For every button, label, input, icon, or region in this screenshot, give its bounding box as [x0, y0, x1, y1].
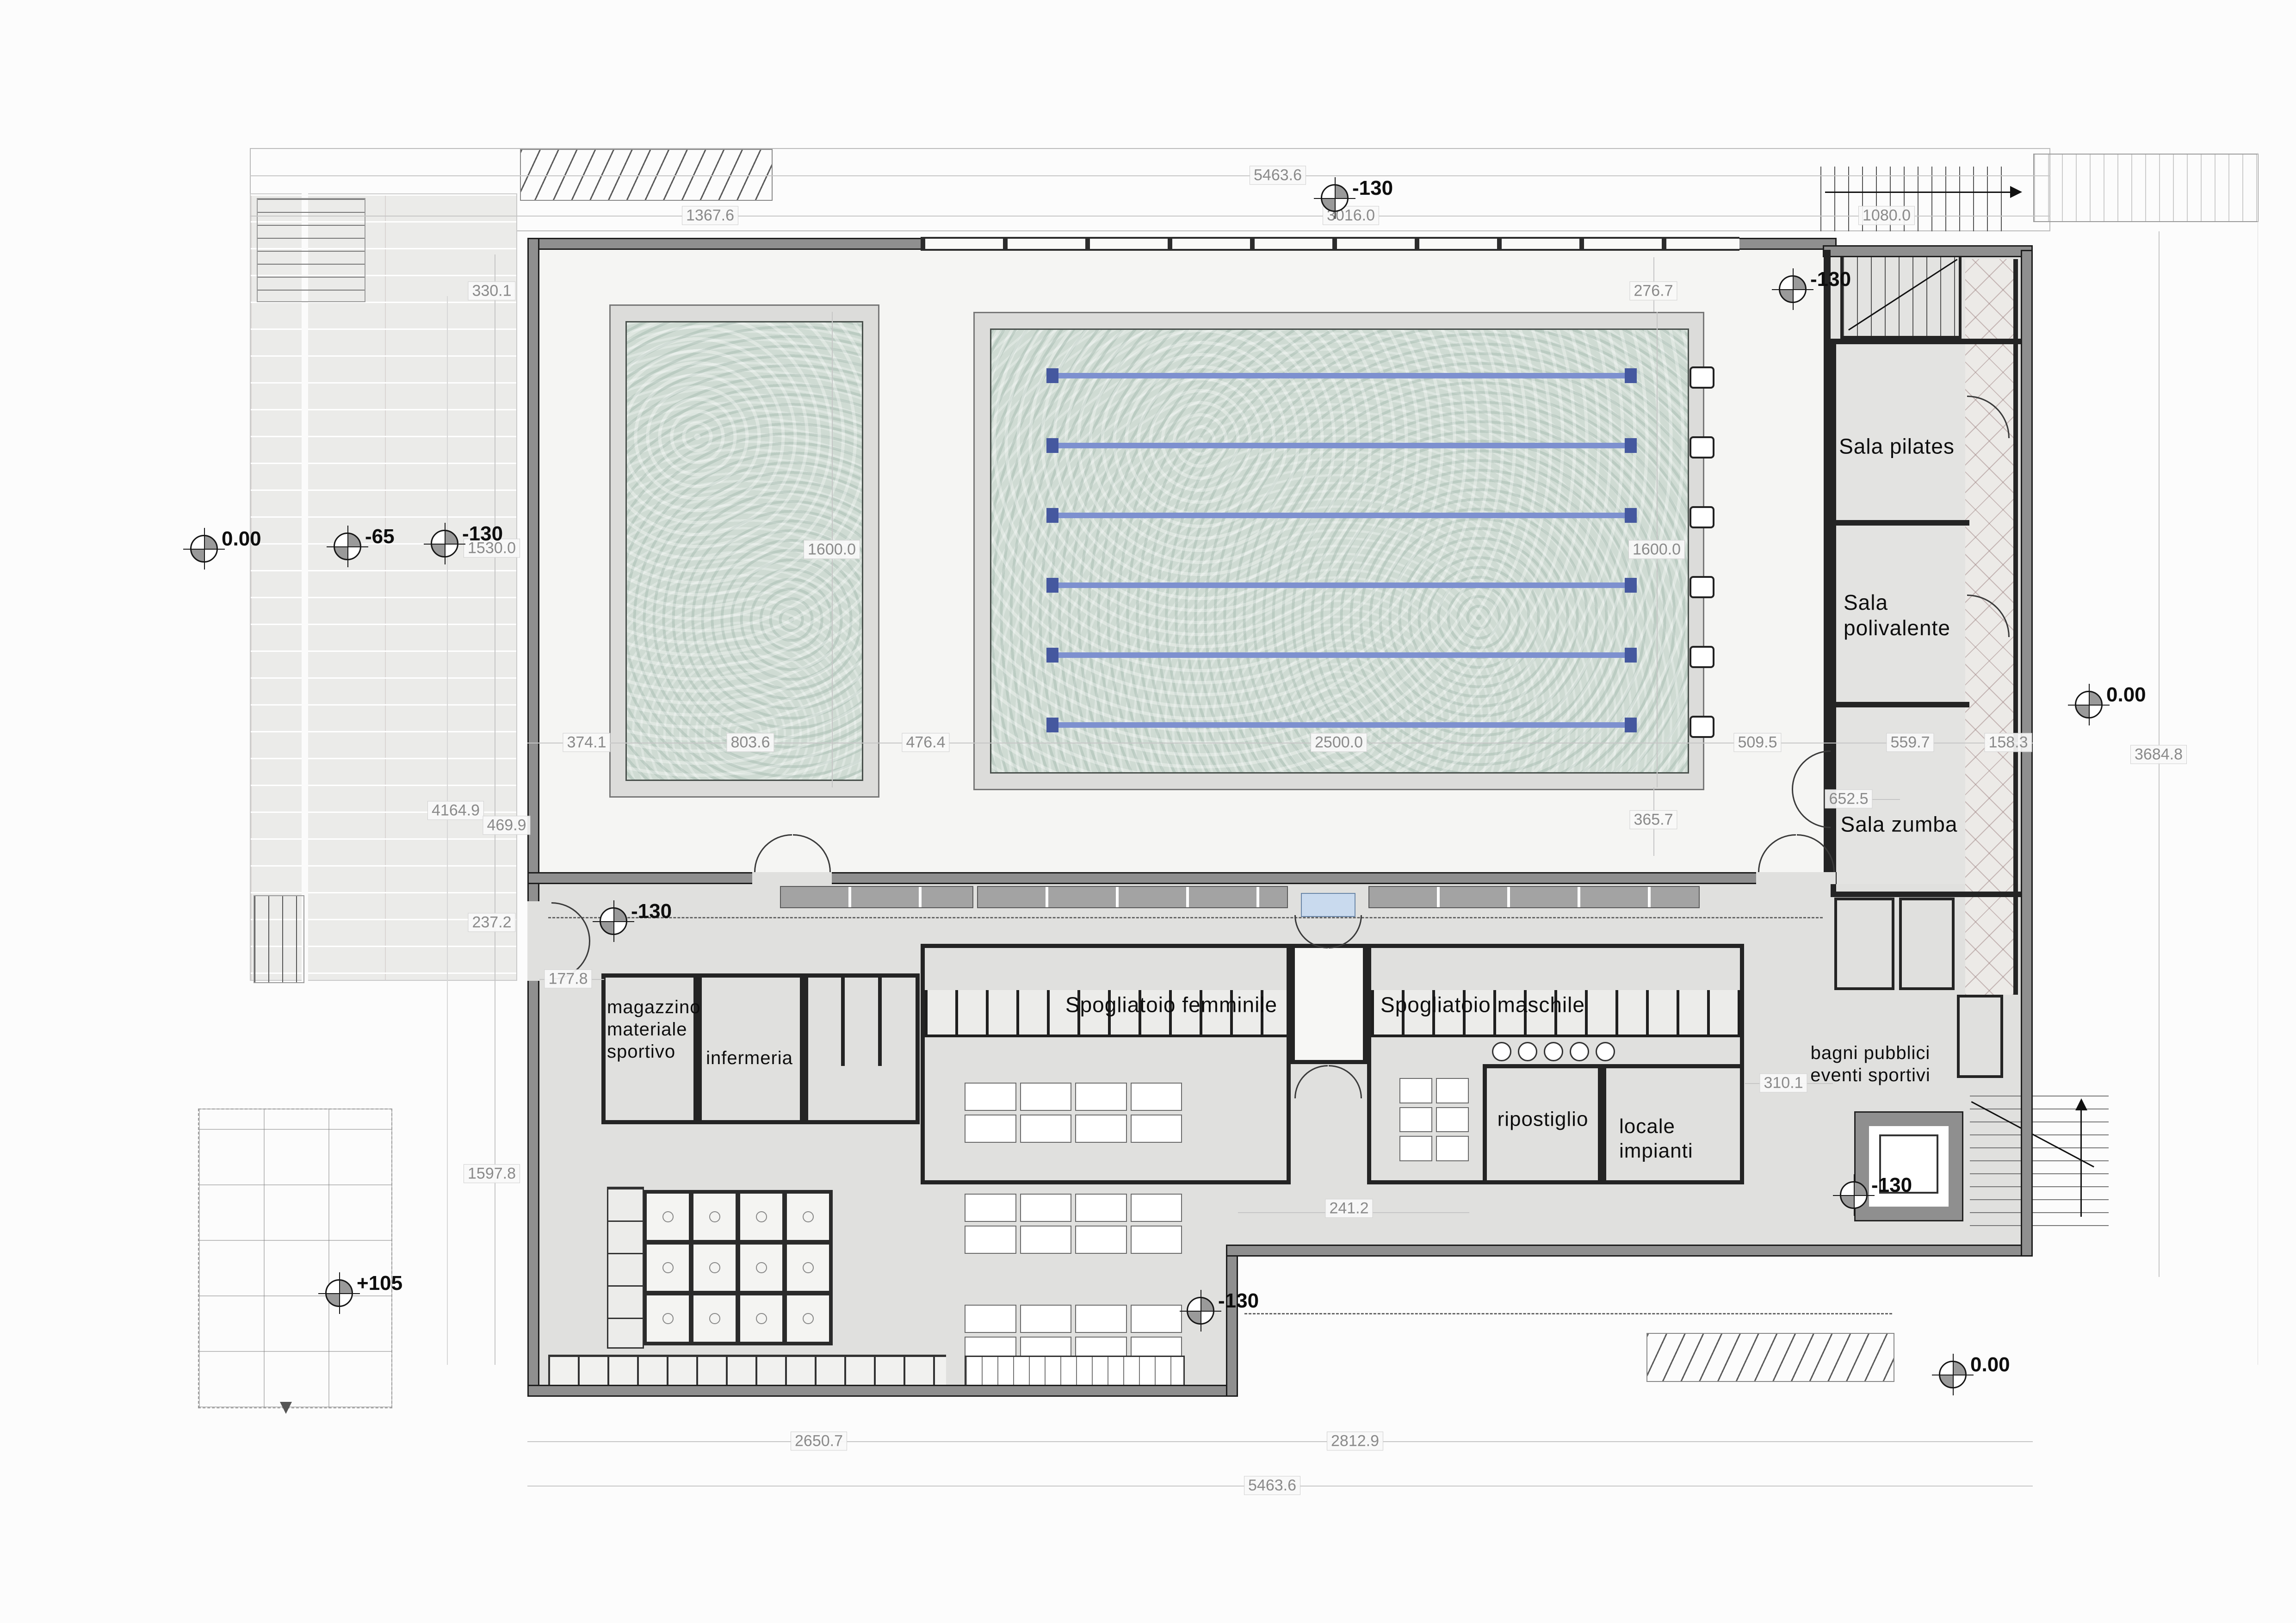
dim-label: 803.6 [726, 733, 774, 752]
level-marker-icon [600, 907, 627, 935]
level-value: -130 [1218, 1289, 1259, 1313]
starting-block [1690, 366, 1714, 389]
level-value: -130 [1810, 268, 1851, 291]
level-value: 0.00 [1970, 1353, 2010, 1376]
dim-label: 509.5 [1733, 733, 1781, 752]
dim-label: 1600.0 [1628, 540, 1685, 559]
entrance-vestibule [1291, 944, 1367, 1064]
room-label-sala-zumba: Sala zumba [1841, 811, 1958, 837]
level-marker: -130 [1321, 184, 1393, 212]
sink [1544, 1042, 1563, 1061]
room-label-spogliatoio-maschile: Spogliatoio maschile [1380, 992, 1585, 1017]
service-zone-dashed-line [548, 917, 1823, 918]
west-mid-stairs [254, 895, 304, 983]
east-wing-west-wall [1831, 339, 1836, 892]
dim-label: 177.8 [544, 969, 592, 988]
level-marker-icon [190, 535, 218, 563]
level-marker: +105 [325, 1279, 402, 1307]
level-value: -130 [631, 900, 672, 923]
level-marker: -130 [1840, 1181, 1912, 1209]
sink [1570, 1042, 1589, 1061]
plaza-arrow-head [280, 1402, 292, 1414]
dim-line [527, 1441, 2033, 1442]
starting-block [1690, 716, 1714, 738]
west-top-stairs [257, 198, 365, 302]
door-opening [1756, 872, 1836, 884]
room-label-locale-impianti: locale impianti [1619, 1115, 1693, 1164]
north-wall-east-wing [1823, 245, 2033, 257]
room-label-bagni-pubblici: bagni pubblici eventi sportivi [1810, 1042, 1931, 1086]
dim-line [495, 254, 495, 1365]
level-marker-icon [1840, 1181, 1868, 1209]
south-east-dashed-line [1244, 1313, 1892, 1314]
level-value: 0.00 [222, 527, 261, 551]
level-value: -130 [1352, 177, 1393, 200]
level-marker: -130 [431, 530, 503, 558]
room-label-magazzino: magazzino materiale sportivo [607, 996, 700, 1063]
sink [1518, 1042, 1537, 1061]
dim-label: 374.1 [563, 733, 610, 752]
ramp-arrow-head [2010, 186, 2022, 198]
dim-label: 559.7 [1886, 733, 1934, 752]
level-value: +105 [357, 1272, 402, 1295]
sink [1492, 1042, 1511, 1061]
wc-cubicle [1899, 898, 1955, 990]
level-marker: 0.00 [190, 535, 261, 563]
poolside-bench [1368, 886, 1700, 908]
north-east-strip [2033, 154, 2259, 222]
level-value: -130 [1871, 1174, 1912, 1197]
main-pool-water [990, 328, 1689, 774]
shower-stalls [643, 1190, 833, 1345]
room-label-spogliatoio-femminile: Spogliatoio femminile [1065, 992, 1277, 1017]
poolside-bench [780, 886, 973, 908]
wc-cubicle [1957, 995, 2003, 1078]
west-deck [250, 193, 517, 981]
locker-row [965, 1356, 1185, 1389]
partition-zumba-bagni [1831, 892, 2021, 897]
north-curtain-wall [921, 237, 1739, 251]
dim-label: 365.7 [1629, 810, 1677, 829]
level-value: 0.00 [2106, 683, 2146, 706]
dim-label: 1597.8 [464, 1164, 520, 1183]
dim-label: 237.2 [468, 913, 515, 932]
room-wc-cluster [804, 973, 920, 1124]
level-marker-icon [1939, 1361, 1967, 1388]
poolside-bench [977, 886, 1288, 908]
lane-rope [1048, 373, 1635, 378]
level-marker-icon [1779, 275, 1807, 303]
level-marker: 0.00 [1939, 1361, 2010, 1388]
dim-label: 276.7 [1629, 281, 1677, 300]
site-boundary-east [2258, 153, 2258, 1365]
east-wall [2021, 250, 2033, 1257]
south-wall-west [527, 1385, 1238, 1397]
starting-block [1690, 576, 1714, 598]
lane-rope [1048, 443, 1635, 448]
dim-label: 5463.6 [1244, 1476, 1300, 1495]
dim-label: 158.3 [1984, 733, 2032, 752]
level-marker-icon [2075, 691, 2103, 719]
dim-line [250, 216, 2050, 217]
dim-label: 5463.6 [1250, 166, 1306, 185]
wc-partition [841, 973, 845, 1066]
south-plaza-grid [198, 1109, 392, 1408]
level-marker: -65 [334, 533, 395, 560]
dim-label: 1080.0 [1858, 206, 1915, 225]
room-label-sala-polivalente: Sala polivalente [1844, 590, 1950, 641]
bench-lockers [965, 1194, 1182, 1254]
stair-arrow-head [2075, 1098, 2087, 1110]
west-deck-gap [302, 193, 308, 981]
partition-under-stair [1831, 339, 2021, 344]
room-label-ripostiglio: ripostiglio [1498, 1108, 1589, 1132]
starting-block [1690, 646, 1714, 668]
dim-line [250, 175, 2050, 176]
dim-label: 3684.8 [2130, 745, 2187, 764]
footbath [1301, 893, 1355, 917]
level-marker: 0.00 [2075, 691, 2146, 719]
level-marker-icon [1187, 1297, 1214, 1325]
wc-cubicle [1834, 898, 1894, 990]
lane-rope [1048, 722, 1635, 728]
south-east-stair [1970, 1096, 2109, 1234]
level-value: -130 [462, 522, 503, 545]
level-marker-icon [325, 1279, 353, 1307]
ramp-arrow-line [1825, 192, 2010, 193]
lane-rope [1048, 652, 1635, 658]
dim-label: 2812.9 [1327, 1431, 1383, 1450]
room-label-sala-pilates: Sala pilates [1839, 434, 1955, 459]
dim-label: 4164.9 [427, 801, 484, 820]
level-marker: -130 [1779, 275, 1851, 303]
level-marker-icon [1321, 184, 1349, 212]
north-canopy-hatch [520, 149, 773, 201]
starting-block [1690, 436, 1714, 458]
wc-block-west [607, 1187, 644, 1349]
pool-hall-south-wall [527, 872, 1837, 884]
dim-label: 2650.7 [791, 1431, 847, 1450]
dim-label: 476.4 [902, 733, 949, 752]
room-label-infermeria: infermeria [706, 1047, 793, 1069]
north-ramp [1820, 167, 2015, 231]
level-marker: -130 [600, 907, 672, 935]
starting-block [1690, 506, 1714, 528]
room-spogliatoio-femminile [921, 944, 1291, 1184]
level-marker-icon [431, 530, 458, 558]
sink [1596, 1042, 1615, 1061]
dim-label: 652.5 [1825, 789, 1872, 808]
dim-label: 241.2 [1325, 1199, 1373, 1218]
dim-label: 2500.0 [1311, 733, 1367, 752]
south-wall-east [1226, 1245, 2033, 1257]
lane-rope [1048, 582, 1635, 588]
east-corridor-wall [2013, 259, 2018, 995]
entrance-opening [527, 901, 539, 981]
level-marker-icon [334, 533, 361, 560]
partition-polivalente-zumba [1831, 702, 1969, 707]
dim-label: 1600.0 [804, 540, 860, 559]
level-marker: -130 [1187, 1297, 1259, 1325]
dim-label: 310.1 [1759, 1073, 1807, 1092]
dim-label: 469.9 [483, 816, 530, 835]
dim-label: 1367.6 [682, 206, 738, 225]
south-canopy-hatch [1646, 1333, 1894, 1382]
partition-pilates-polivalente [1831, 520, 1969, 526]
level-value: -65 [365, 525, 395, 548]
stair-arrow-line [2080, 1110, 2082, 1217]
lane-rope [1048, 513, 1635, 518]
dim-label: 330.1 [468, 281, 515, 300]
dim-line [447, 296, 448, 1365]
wc-partition [878, 973, 882, 1066]
floor-plan-canvas: 5463.6 1367.6 3016.0 1080.0 330.1 1530.0… [0, 0, 2296, 1623]
door-opening [752, 872, 832, 884]
